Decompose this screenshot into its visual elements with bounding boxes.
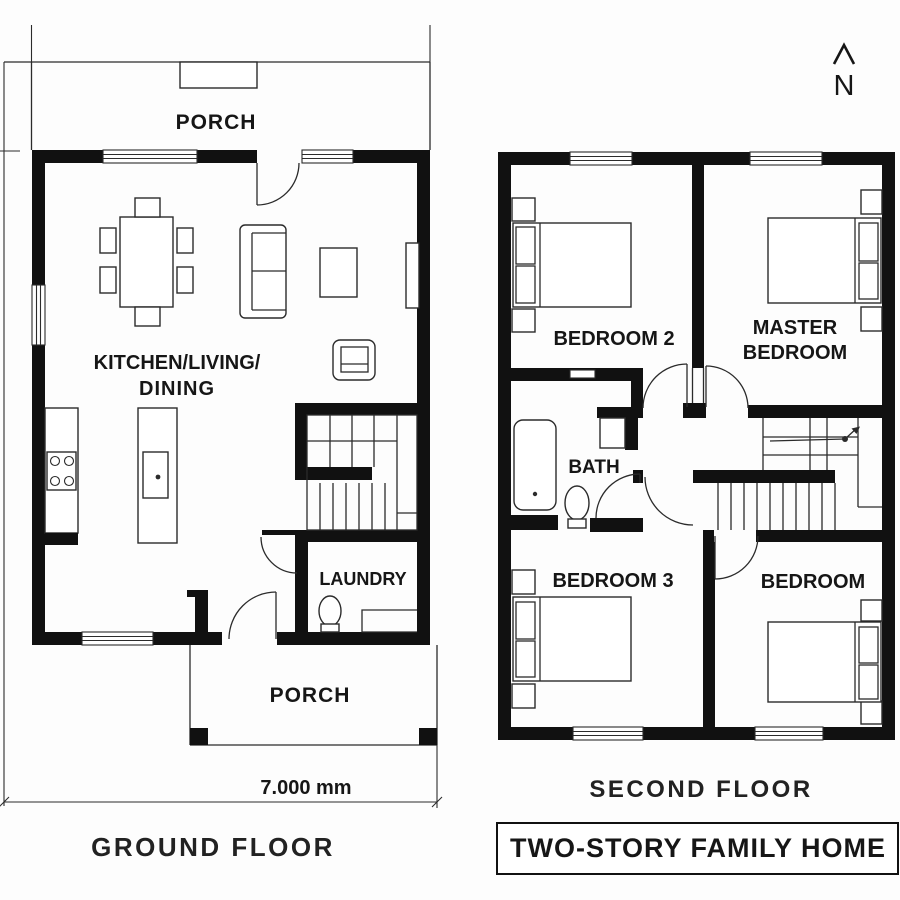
second-floor-plan: BEDROOM 2 MASTER BEDROOM BATH BEDROOM 3 … [498,152,895,803]
porch-step [180,62,257,88]
second-floor-caption: SECOND FLOOR [589,776,812,803]
room-label-porch-top: PORCH [176,111,257,134]
window-icon [82,632,153,645]
bedroom2-furniture [512,198,631,332]
bed-icon [768,622,881,702]
bedroom4-furniture [768,600,882,724]
room-label-bedroom4: BEDROOM [761,571,865,593]
room-label-kitchen-line2: DINING [139,378,215,400]
ground-floor-plan: PORCH KITCHEN/LIVING/ DINING LAUNDRY POR… [0,25,442,862]
floor-plan-sheet: PORCH KITCHEN/LIVING/ DINING LAUNDRY POR… [0,0,900,900]
porch-top [4,62,430,150]
window-icon [32,285,45,345]
door-icon [645,477,693,525]
room-label-bedroom3: BEDROOM 3 [552,570,673,592]
console-table-icon [406,243,419,308]
toilet-icon [319,596,341,632]
window-icon [103,150,197,163]
north-arrow-icon: N [834,45,855,102]
door-icon [229,592,276,639]
room-label-master-line1: MASTER [753,317,838,339]
door-icon [643,364,687,408]
window-icon [302,150,353,163]
vanity-icon [600,418,625,448]
nightstand-icon [861,190,882,214]
room-label-bath: BATH [568,457,619,478]
laundry-fixtures [319,596,417,632]
nightstand-icon [512,570,535,594]
title-block: TWO-STORY FAMILY HOME [497,823,898,874]
door-icon [715,536,758,579]
nightstand-icon [861,307,882,331]
ground-floor-caption: GROUND FLOOR [91,832,335,862]
door-icon [261,537,297,573]
room-label-bedroom2: BEDROOM 2 [553,328,674,350]
kitchen-fixtures [45,408,177,545]
master-furniture [768,190,882,331]
nightstand-icon [512,198,535,221]
title-text: TWO-STORY FAMILY HOME [510,833,886,863]
nightstand-icon [861,600,882,621]
toilet-icon [565,486,589,528]
window-icon [570,152,632,165]
living-furniture [240,225,419,380]
door-icon [706,366,748,408]
room-label-laundry: LAUNDRY [319,569,406,589]
room-label-master-line2: BEDROOM [743,342,847,364]
bed-icon [513,597,631,681]
bed-icon [513,223,631,307]
sofa-icon [240,225,286,318]
sink-icon [143,452,168,498]
bathtub-icon [514,420,556,510]
dining-table-icon [100,198,193,326]
stair-direction-arrow [770,427,860,443]
window-icon [573,727,643,740]
window-icon [750,152,822,165]
nightstand-icon [512,684,535,708]
wall-niche [570,370,595,378]
bed-icon [768,218,881,303]
armchair-icon [333,340,375,380]
coffee-table-icon [320,248,357,297]
stove-icon [47,452,76,490]
nightstand-icon [861,701,882,724]
floor-plan-drawing: PORCH KITCHEN/LIVING/ DINING LAUNDRY POR… [0,0,900,900]
ground-interior-walls [187,403,430,632]
north-label: N [834,70,855,102]
nightstand-icon [512,309,535,332]
room-label-kitchen-line1: KITCHEN/LIVING/ [94,352,261,374]
laundry-counter [362,610,417,632]
window-icon [755,727,823,740]
door-icon [257,163,299,205]
room-label-porch-bottom: PORCH [270,684,351,707]
dimension-label: 7.000 mm [260,777,351,799]
